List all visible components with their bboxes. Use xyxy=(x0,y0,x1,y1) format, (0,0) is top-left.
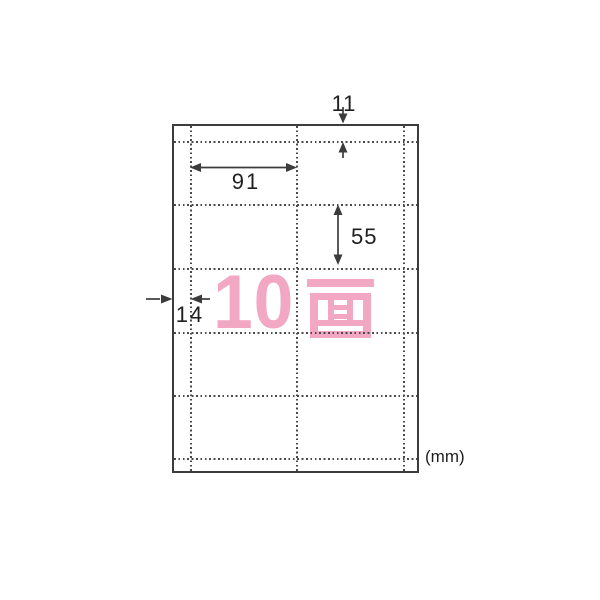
perforation-line-horizontal-3 xyxy=(174,268,417,270)
perforation-line-horizontal-4 xyxy=(174,332,417,334)
top-margin-value: 11 xyxy=(332,91,357,117)
label-sheet-outline xyxy=(172,124,419,473)
perforation-line-vertical-left xyxy=(190,126,192,471)
perforation-line-horizontal-2 xyxy=(174,204,417,206)
left-margin-value: 14 xyxy=(176,302,204,328)
perforation-line-vertical-right xyxy=(403,126,405,471)
product-diagram-canvas: 10 xyxy=(0,0,600,600)
perforation-line-horizontal-1 xyxy=(174,141,417,143)
perforation-line-horizontal-5 xyxy=(174,395,417,397)
card-width-value: 91 xyxy=(232,169,260,195)
perforation-line-horizontal-6 xyxy=(174,458,417,460)
unit-label: (mm) xyxy=(425,447,465,467)
card-height-value: 55 xyxy=(351,224,377,250)
perforation-line-vertical-center xyxy=(296,126,298,471)
